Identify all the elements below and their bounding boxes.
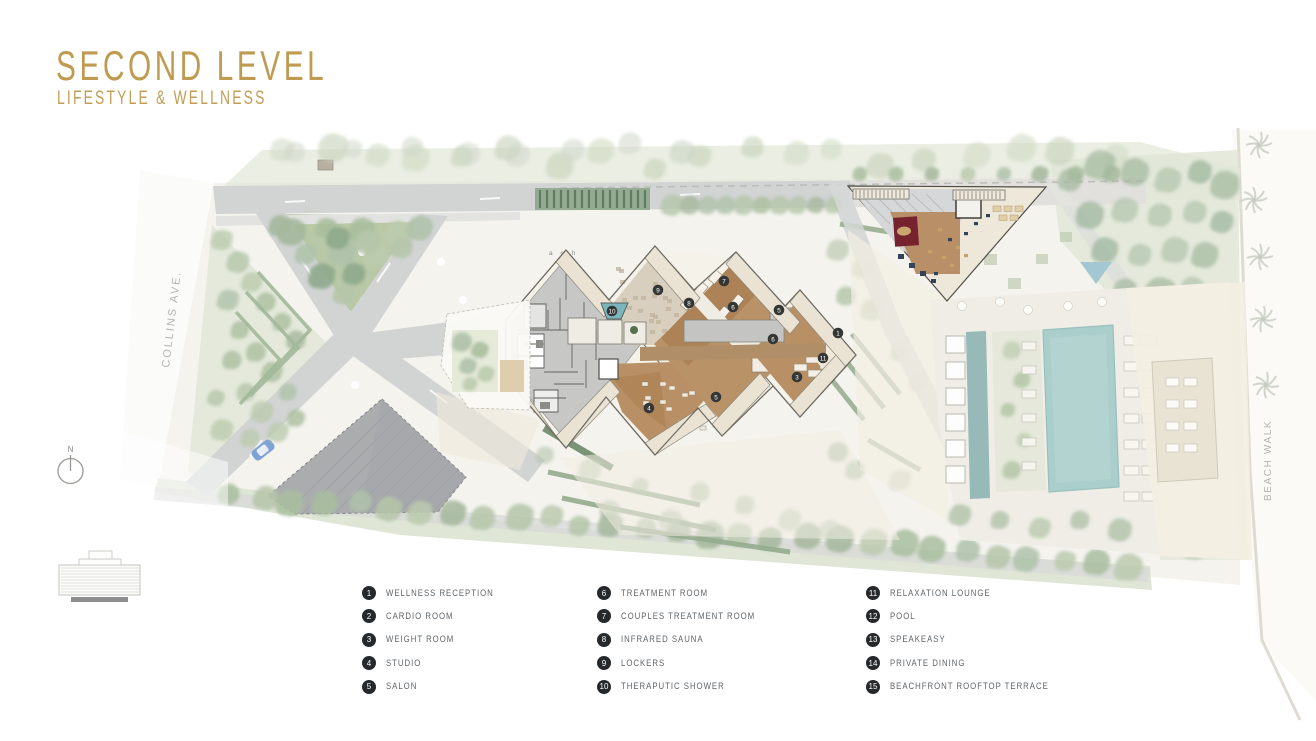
svg-text:3: 3 xyxy=(795,374,799,381)
svg-text:11: 11 xyxy=(820,355,827,362)
svg-text:4: 4 xyxy=(647,405,651,412)
svg-text:a c h: a c h xyxy=(549,250,578,257)
svg-text:6: 6 xyxy=(771,336,775,343)
svg-text:6: 6 xyxy=(731,304,735,311)
svg-text:1: 1 xyxy=(836,330,840,337)
svg-text:5: 5 xyxy=(714,394,718,401)
svg-text:10: 10 xyxy=(608,308,616,315)
svg-text:8: 8 xyxy=(687,300,691,307)
svg-text:BEACH WALK: BEACH WALK xyxy=(1263,420,1274,501)
svg-text:9: 9 xyxy=(656,287,660,294)
svg-text:5: 5 xyxy=(777,307,781,314)
svg-text:N: N xyxy=(68,445,74,454)
svg-text:7: 7 xyxy=(722,278,726,285)
